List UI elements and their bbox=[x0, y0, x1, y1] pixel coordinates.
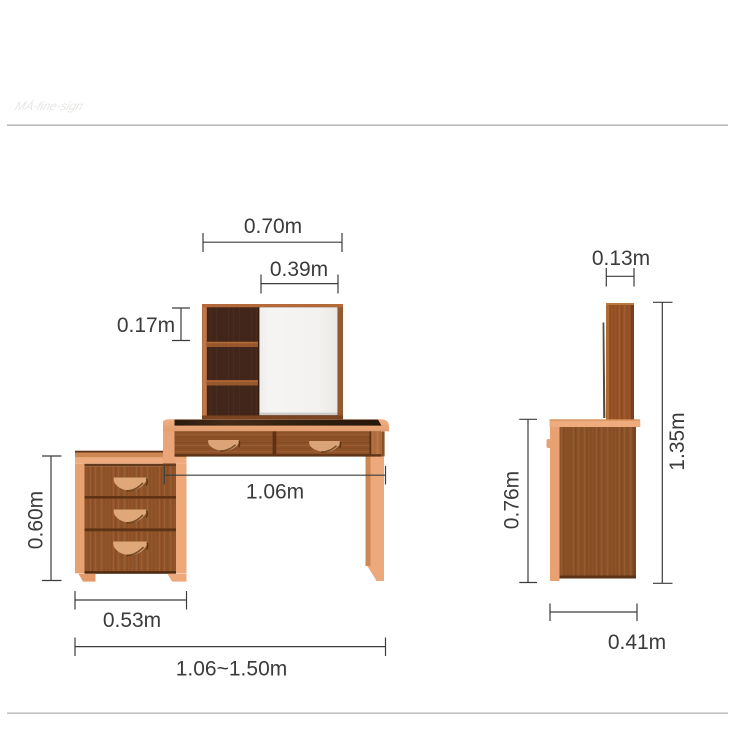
svg-text:1.06~1.50m: 1.06~1.50m bbox=[176, 658, 288, 681]
svg-text:1.06m: 1.06m bbox=[246, 481, 304, 504]
svg-text:0.60m: 0.60m bbox=[25, 491, 48, 549]
svg-text:MÁ-fine-sign: MÁ-fine-sign bbox=[13, 98, 85, 113]
svg-text:0.17m: 0.17m bbox=[117, 314, 175, 337]
svg-text:0.70m: 0.70m bbox=[244, 215, 302, 238]
svg-text:0.13m: 0.13m bbox=[592, 247, 650, 270]
svg-text:0.41m: 0.41m bbox=[608, 631, 666, 654]
svg-text:0.39m: 0.39m bbox=[270, 258, 328, 281]
svg-text:0.53m: 0.53m bbox=[103, 609, 161, 632]
svg-text:0.76m: 0.76m bbox=[501, 471, 524, 529]
svg-text:1.35m: 1.35m bbox=[666, 412, 689, 470]
